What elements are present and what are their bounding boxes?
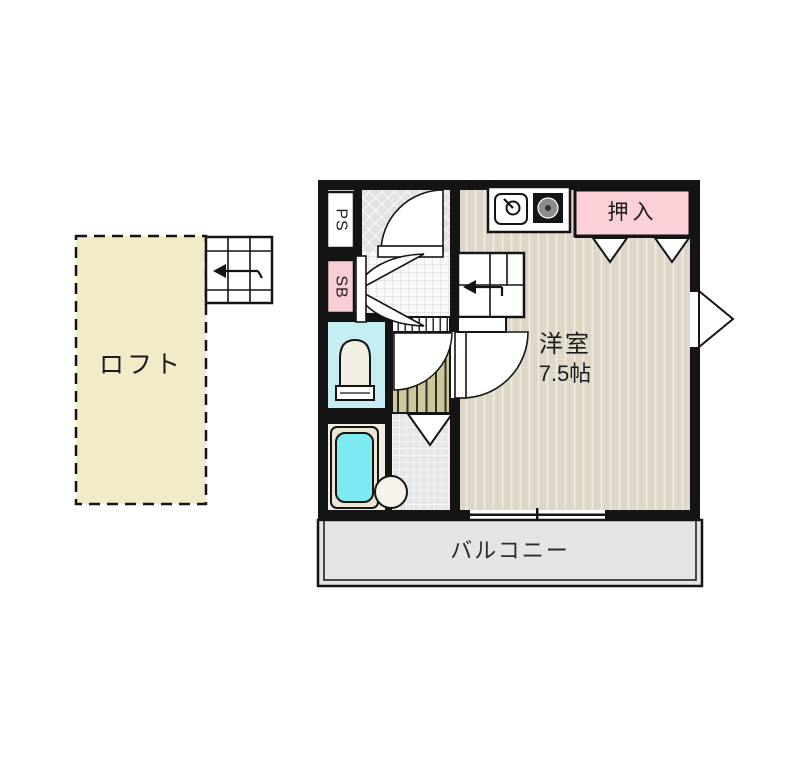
room-name: 洋室 xyxy=(539,330,591,360)
floor-plan: ロフト PS SB 洋室 7.5帖 押入 バルコニー xyxy=(0,0,800,762)
entrance-arrow-icon xyxy=(699,291,733,347)
balcony-label: バルコニー xyxy=(318,520,702,582)
shoe-box-label: SB xyxy=(327,260,354,313)
kitchen-unit xyxy=(488,187,570,232)
room-size: 7.5帖 xyxy=(539,360,592,388)
toilet-icon xyxy=(336,340,374,400)
kitchen-sink-icon xyxy=(495,194,527,224)
main-room-label: 洋室 7.5帖 xyxy=(498,326,632,392)
wash-basin-icon xyxy=(375,476,407,508)
bathtub-icon xyxy=(331,427,378,508)
closet-label: 押入 xyxy=(575,190,690,236)
pipe-space-label: PS xyxy=(327,192,354,248)
gas-burner-icon xyxy=(533,193,563,223)
loft-access-stairs xyxy=(392,317,452,413)
loft-stairs-icon xyxy=(206,237,272,303)
loft-label: ロフト xyxy=(76,336,206,396)
